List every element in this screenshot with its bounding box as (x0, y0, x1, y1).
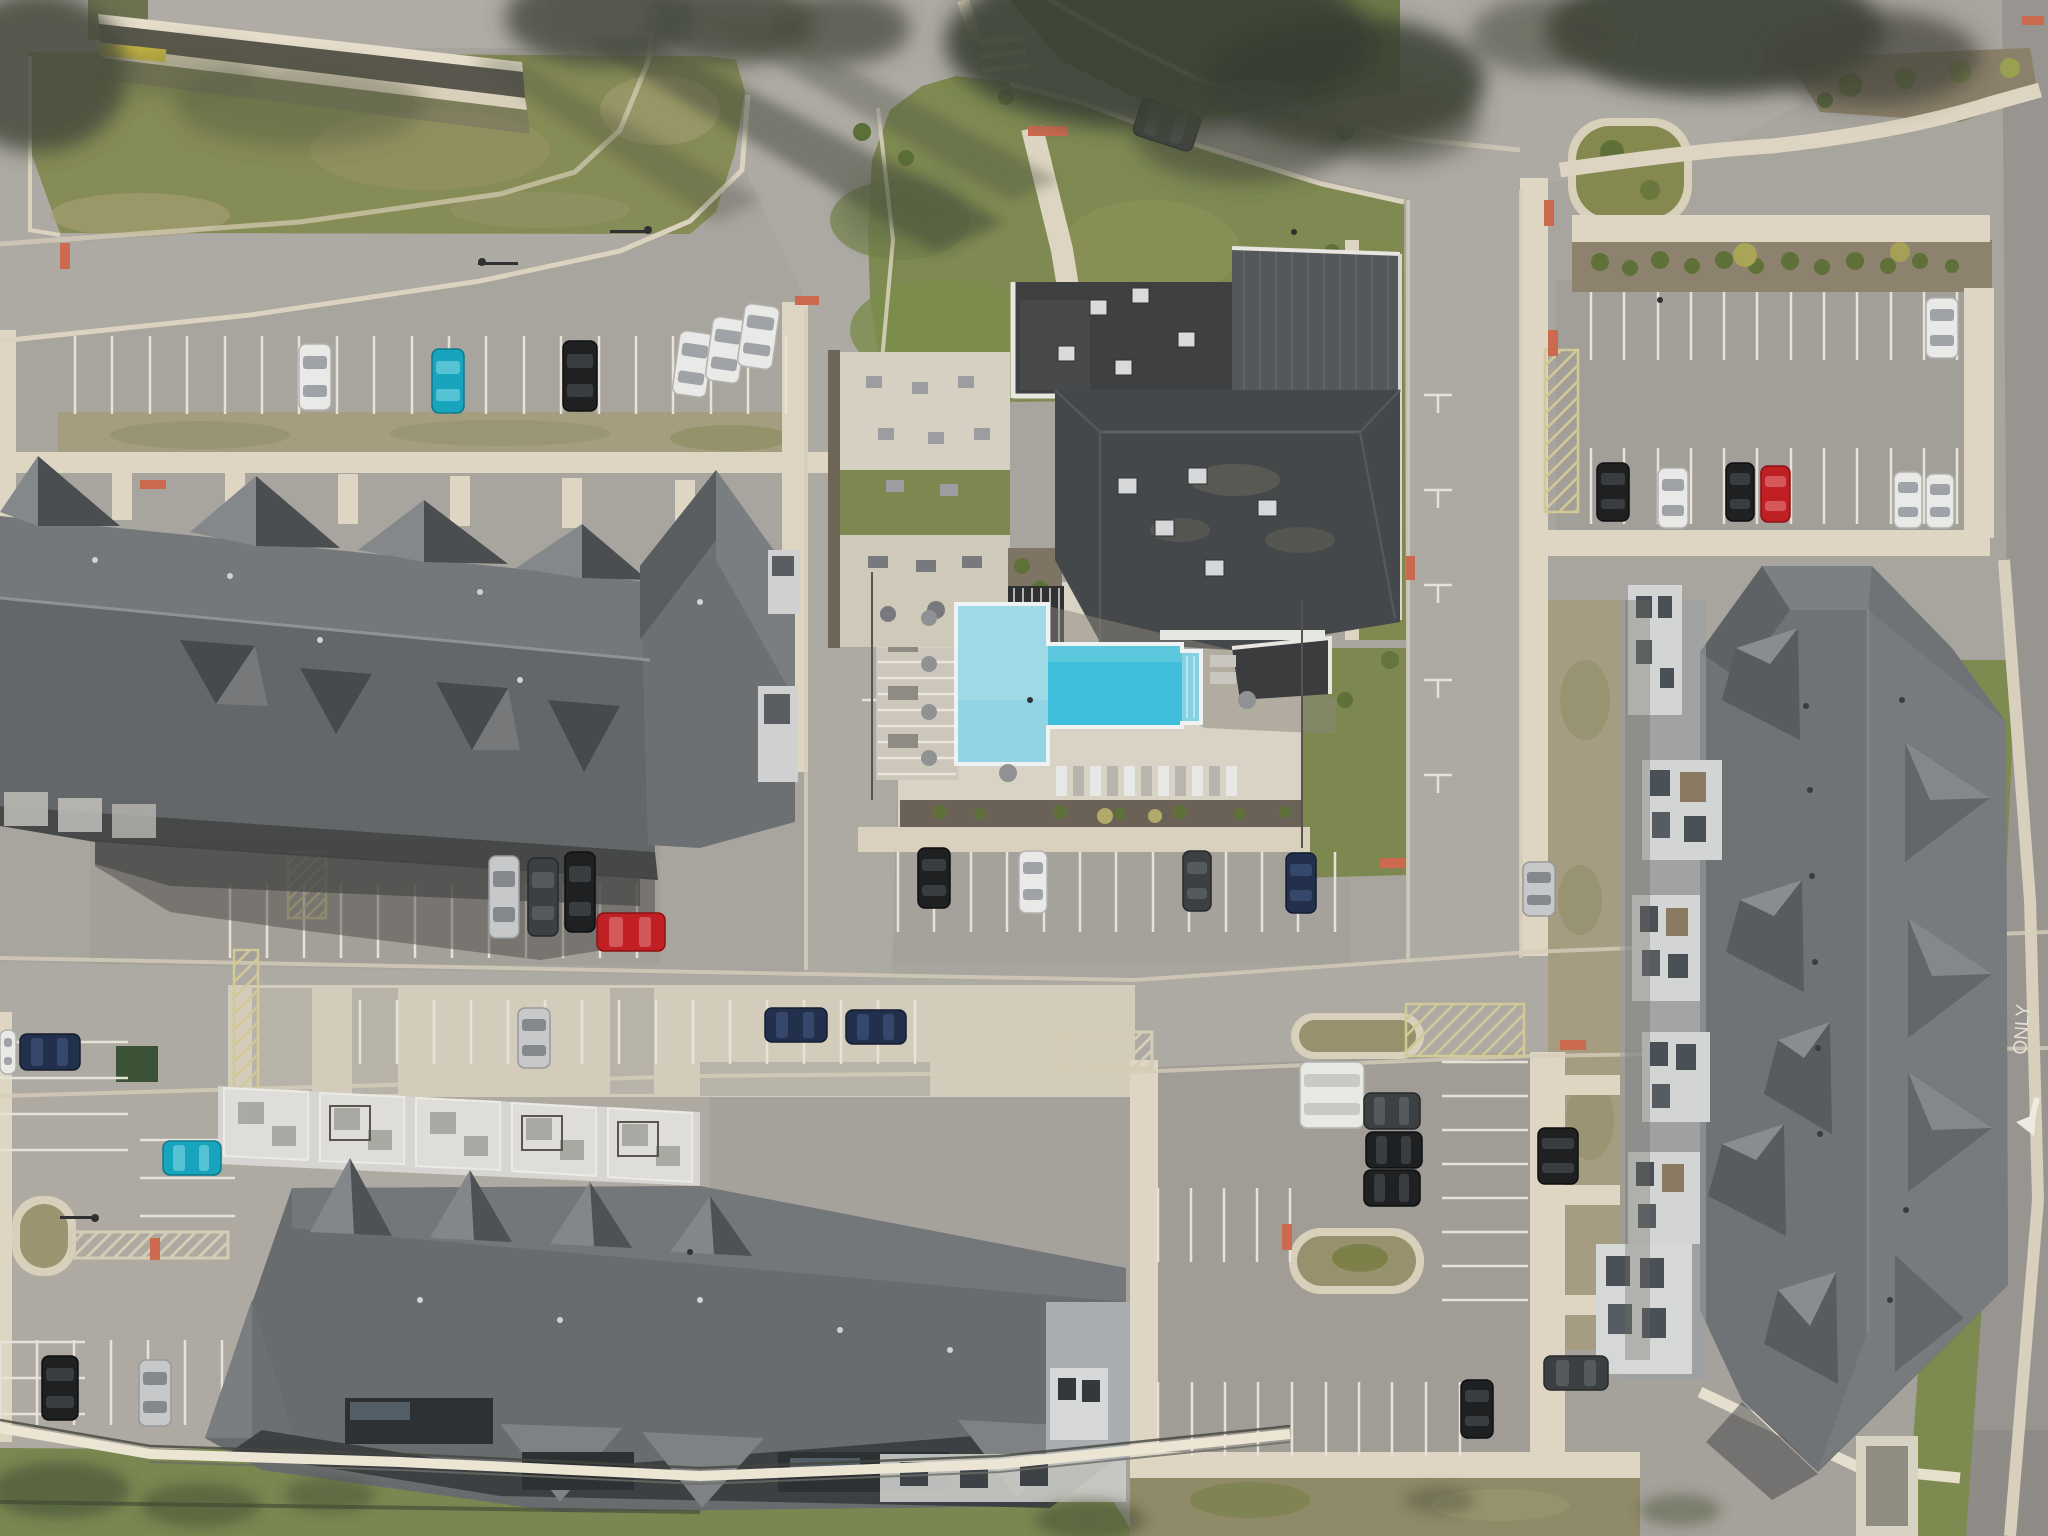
svg-text:ONLY: ONLY (2010, 1003, 2034, 1055)
